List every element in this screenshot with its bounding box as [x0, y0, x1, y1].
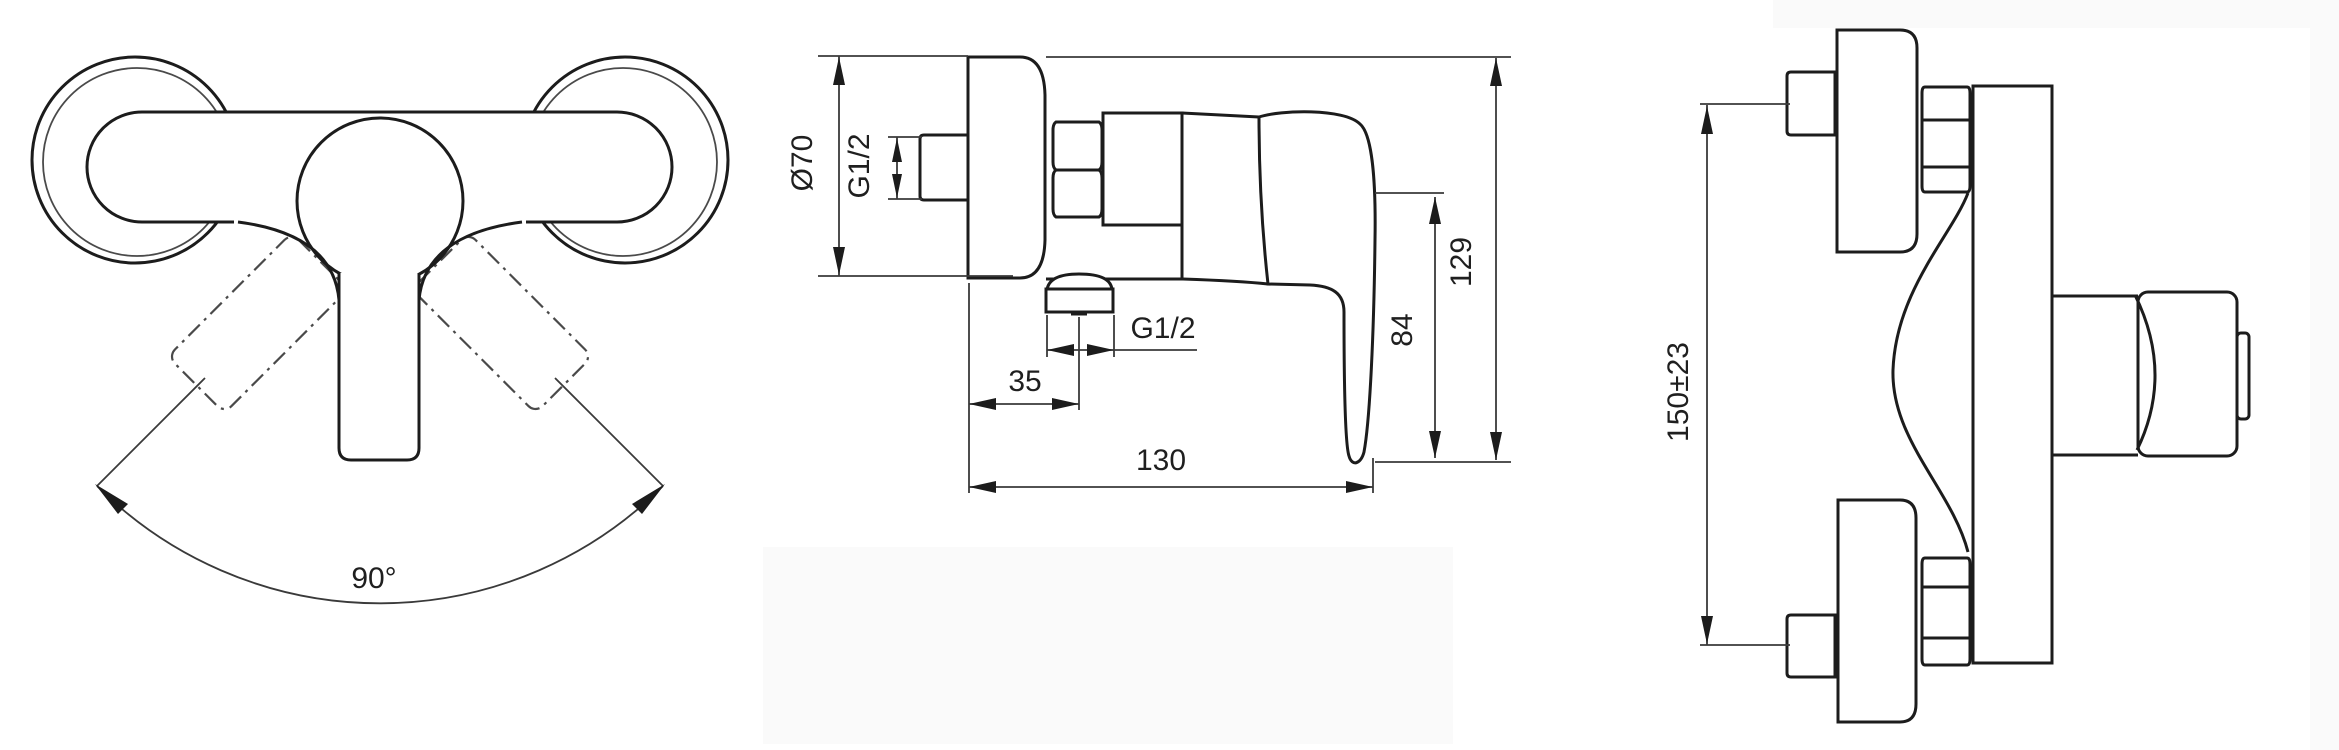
hex-nut-lower — [1053, 170, 1102, 217]
drawing-canvas: 90° Ø70 — [0, 0, 2339, 750]
upper-hex-nut — [1922, 87, 1970, 192]
outlet-pipe — [1046, 289, 1113, 312]
swivel-angle-label: 90° — [351, 562, 396, 595]
inlet-thread-label: G1/2 — [843, 133, 876, 198]
handle-button — [2237, 333, 2249, 419]
hex-nut-upper — [1053, 122, 1102, 170]
background-panel-right — [2310, 0, 2339, 750]
right-radial-line — [555, 378, 663, 486]
neck-bottom-line — [1183, 279, 1268, 284]
total-height-label: 129 — [1445, 237, 1478, 287]
side-view: Ø70 G1/2 G1/2 35 — [786, 56, 1511, 493]
dimension-outlet-offset: 35 — [969, 283, 1079, 493]
neck-top-line — [1182, 113, 1259, 117]
cartridge-housing — [1103, 113, 1182, 225]
left-radial-line — [97, 378, 205, 486]
lower-hex-nut — [1922, 558, 1970, 665]
lever-handle-side — [1259, 112, 1375, 463]
lower-flange — [1838, 500, 1916, 722]
dimension-mount-spacing: 150±23 — [1662, 104, 1790, 645]
dimension-outlet-thread: G1/2 — [1047, 312, 1197, 357]
outlet-thread-label: G1/2 — [1130, 312, 1195, 345]
lower-nipple — [1787, 615, 1835, 677]
flange-diameter-label: Ø70 — [786, 135, 819, 192]
mount-spacing-label: 150±23 — [1662, 342, 1695, 442]
wall-flange-side — [968, 57, 1045, 278]
handle-drop-label: 84 — [1386, 313, 1419, 346]
dimension-inlet-thread: G1/2 — [843, 133, 922, 199]
outlet-offset-label: 35 — [1008, 365, 1041, 398]
handle-stem — [339, 273, 419, 460]
upper-flange — [1837, 30, 1917, 252]
background-panel-bottom — [763, 547, 1453, 744]
dimension-total-depth: 130 — [969, 444, 1373, 493]
inlet-nipple-side — [920, 135, 968, 200]
technical-drawing-sheet: 90° Ø70 — [0, 0, 2339, 750]
background-panel-top-right — [1773, 0, 2339, 28]
wall-bar-top-view — [1973, 86, 2052, 663]
total-depth-label: 130 — [1136, 444, 1186, 477]
upper-nipple — [1787, 72, 1835, 135]
top-view: 150±23 — [1662, 30, 2249, 722]
handle-knob-top-view — [2138, 292, 2237, 456]
front-view: 90° — [32, 57, 728, 603]
dimension-handle-drop: 84 — [1375, 193, 1444, 458]
